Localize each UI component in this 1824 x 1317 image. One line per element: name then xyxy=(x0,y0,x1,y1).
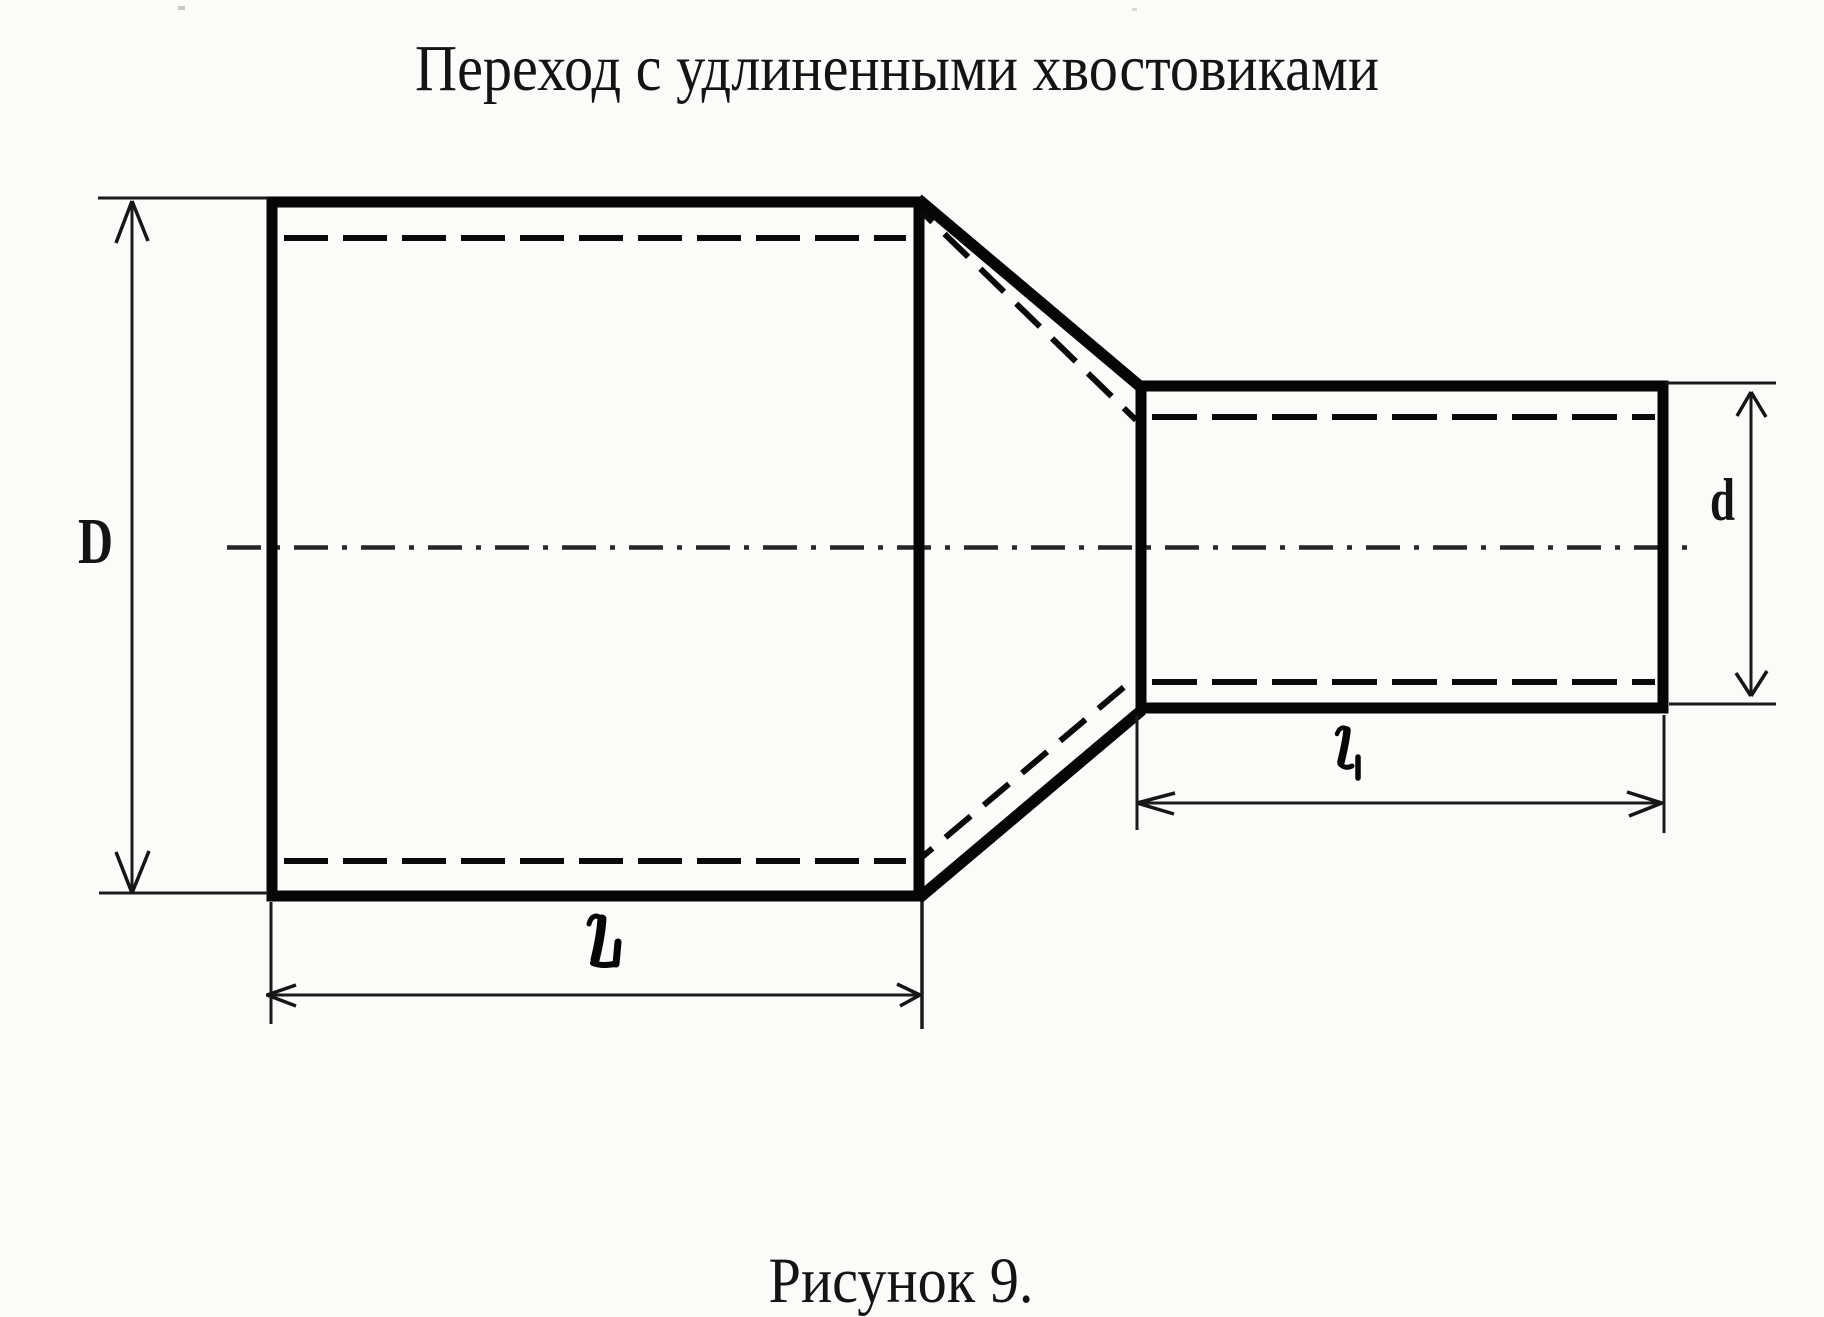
svg-text:Рисунок 9.: Рисунок 9. xyxy=(769,1245,1034,1317)
svg-text:d: d xyxy=(1710,467,1735,533)
svg-text:Переход с удлиненными хвостови: Переход с удлиненными хвостовиками xyxy=(415,32,1379,105)
svg-text:D: D xyxy=(78,505,113,578)
